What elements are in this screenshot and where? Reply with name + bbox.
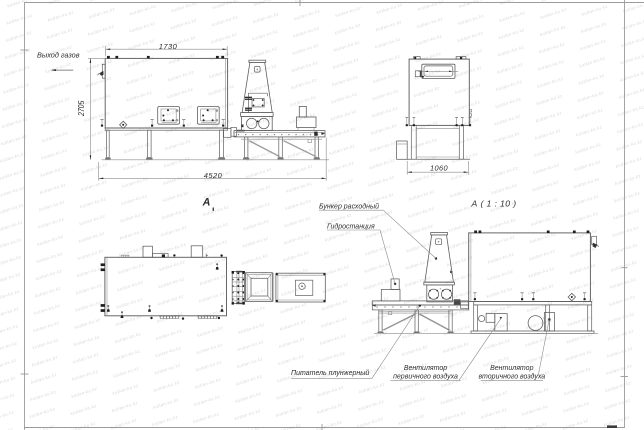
svg-text:kotlan-ko.kz: kotlan-ko.kz [332, 57, 360, 70]
svg-text:kotlan-ko.kz: kotlan-ko.kz [0, 306, 20, 319]
svg-text:kotlan-ko.kz: kotlan-ko.kz [0, 202, 25, 215]
svg-text:kotlan-ko.kz: kotlan-ko.kz [279, 318, 307, 331]
svg-text:kotlan-ko.kz: kotlan-ko.kz [458, 0, 486, 9]
svg-text:Вентилятор: Вентилятор [404, 365, 447, 372]
svg-text:kotlan-ko.kz: kotlan-ko.kz [112, 383, 140, 396]
svg-text:kotlan-ko.kz: kotlan-ko.kz [0, 168, 26, 181]
svg-text:kotlan-ko.kz: kotlan-ko.kz [537, 76, 565, 89]
svg-text:kotlan-ko.kz: kotlan-ko.kz [404, 275, 432, 288]
svg-text:kotlan-ko.kz: kotlan-ko.kz [411, 119, 439, 132]
svg-text:kotlan-ko.kz: kotlan-ko.kz [294, 0, 322, 4]
svg-text:kotlan-ko.kz: kotlan-ko.kz [154, 362, 182, 375]
svg-text:kotlan-ko.kz: kotlan-ko.kz [616, 138, 644, 151]
svg-text:kotlan-ko.kz: kotlan-ko.kz [118, 245, 146, 258]
svg-text:kotlan-ko.kz: kotlan-ko.kz [565, 349, 593, 362]
svg-text:kotlan-ko.kz: kotlan-ko.kz [44, 78, 72, 91]
svg-text:kotlan-ko.kz: kotlan-ko.kz [0, 288, 21, 301]
svg-text:kotlan-ko.kz: kotlan-ko.kz [376, 2, 404, 15]
svg-text:kotlan-ko.kz: kotlan-ko.kz [286, 163, 314, 176]
svg-text:kotlan-ko.kz: kotlan-ko.kz [375, 19, 403, 32]
svg-text:kotlan-ko.kz: kotlan-ko.kz [405, 257, 433, 270]
svg-text:kotlan-ko.kz: kotlan-ko.kz [357, 399, 385, 412]
svg-text:kotlan-ko.kz: kotlan-ko.kz [573, 176, 601, 189]
svg-text:kotlan-ko.kz: kotlan-ko.kz [210, 31, 238, 44]
svg-text:kotlan-ko.kz: kotlan-ko.kz [280, 301, 308, 314]
svg-text:kotlan-ko.kz: kotlan-ko.kz [540, 7, 568, 20]
svg-text:kotlan-ko.kz: kotlan-ko.kz [289, 94, 317, 107]
svg-text:kotlan-ko.kz: kotlan-ko.kz [331, 74, 359, 87]
svg-text:kotlan-ko.kz: kotlan-ko.kz [111, 400, 139, 413]
svg-text:kotlan-ko.kz: kotlan-ko.kz [250, 63, 278, 76]
svg-text:kotlan-ko.kz: kotlan-ko.kz [167, 69, 195, 82]
svg-text:kotlan-ko.kz: kotlan-ko.kz [247, 132, 275, 145]
svg-text:kotlan-ko.kz: kotlan-ko.kz [439, 410, 467, 423]
svg-text:kotlan-ko.kz: kotlan-ko.kz [442, 341, 470, 354]
svg-text:kotlan-ko.kz: kotlan-ko.kz [535, 110, 563, 123]
svg-text:kotlan-ko.kz: kotlan-ko.kz [43, 96, 71, 109]
svg-text:kotlan-ko.kz: kotlan-ko.kz [567, 297, 595, 310]
svg-text:kotlan-ko.kz: kotlan-ko.kz [495, 79, 523, 92]
svg-text:kotlan-ko.kz: kotlan-ko.kz [537, 58, 565, 71]
svg-text:kotlan-ko.kz: kotlan-ko.kz [45, 61, 73, 74]
svg-text:kotlan-ko.kz: kotlan-ko.kz [579, 55, 607, 68]
svg-text:kotlan-ko.kz: kotlan-ko.kz [564, 366, 592, 379]
svg-text:kotlan-ko.kz: kotlan-ko.kz [33, 303, 61, 316]
svg-text:kotlan-ko.kz: kotlan-ko.kz [81, 162, 109, 175]
svg-text:kotlan-ko.kz: kotlan-ko.kz [571, 228, 599, 241]
svg-text:kotlan-ko.kz: kotlan-ko.kz [209, 66, 237, 79]
svg-text:kotlan-ko.kz: kotlan-ko.kz [570, 245, 598, 258]
svg-text:Выход газов: Выход газов [37, 51, 80, 60]
svg-text:kotlan-ko.kz: kotlan-ko.kz [581, 4, 609, 17]
svg-text:kotlan-ko.kz: kotlan-ko.kz [323, 246, 351, 259]
svg-text:kotlan-ko.kz: kotlan-ko.kz [46, 27, 74, 40]
svg-text:kotlan-ko.kz: kotlan-ko.kz [73, 334, 101, 347]
svg-text:kotlan-ko.kz: kotlan-ko.kz [487, 268, 515, 281]
svg-text:kotlan-ko.kz: kotlan-ko.kz [167, 86, 195, 99]
svg-text:kotlan-ko.kz: kotlan-ko.kz [521, 421, 549, 430]
svg-text:kotlan-ko.kz: kotlan-ko.kz [409, 171, 437, 184]
svg-text:kotlan-ko.kz: kotlan-ko.kz [575, 142, 603, 155]
svg-text:первичного воздуха: первичного воздуха [393, 373, 458, 381]
svg-text:kotlan-ko.kz: kotlan-ko.kz [35, 268, 63, 281]
svg-text:kotlan-ko.kz: kotlan-ko.kz [532, 179, 560, 192]
svg-text:kotlan-ko.kz: kotlan-ko.kz [609, 276, 637, 289]
svg-text:А: А [202, 197, 211, 209]
svg-text:kotlan-ko.kz: kotlan-ko.kz [84, 93, 112, 106]
svg-text:kotlan-ko.kz: kotlan-ko.kz [323, 264, 351, 277]
svg-text:kotlan-ko.kz: kotlan-ko.kz [412, 102, 440, 115]
svg-text:kotlan-ko.kz: kotlan-ko.kz [30, 372, 58, 385]
svg-text:kotlan-ko.kz: kotlan-ko.kz [620, 52, 644, 65]
svg-text:kotlan-ko.kz: kotlan-ko.kz [371, 105, 399, 118]
svg-text:kotlan-ko.kz: kotlan-ko.kz [617, 121, 644, 134]
svg-text:kotlan-ko.kz: kotlan-ko.kz [329, 126, 357, 139]
svg-text:kotlan-ko.kz: kotlan-ko.kz [170, 17, 198, 30]
svg-text:kotlan-ko.kz: kotlan-ko.kz [83, 127, 111, 140]
svg-text:kotlan-ko.kz: kotlan-ko.kz [129, 3, 157, 16]
svg-text:kotlan-ko.kz: kotlan-ko.kz [72, 351, 100, 364]
svg-text:kotlan-ko.kz: kotlan-ko.kz [324, 229, 352, 242]
svg-text:kotlan-ko.kz: kotlan-ko.kz [121, 176, 149, 189]
svg-text:kotlan-ko.kz: kotlan-ko.kz [0, 357, 18, 370]
svg-text:kotlan-ko.kz: kotlan-ko.kz [317, 384, 345, 397]
svg-text:kotlan-ko.kz: kotlan-ko.kz [413, 85, 441, 98]
svg-text:kotlan-ko.kz: kotlan-ko.kz [7, 0, 35, 8]
svg-text:kotlan-ko.kz: kotlan-ko.kz [152, 397, 180, 410]
svg-text:kotlan-ko.kz: kotlan-ko.kz [234, 408, 262, 421]
svg-text:kotlan-ko.kz: kotlan-ko.kz [357, 416, 385, 429]
svg-text:kotlan-ko.kz: kotlan-ko.kz [157, 293, 185, 306]
svg-text:kotlan-ko.kz: kotlan-ko.kz [533, 162, 561, 175]
svg-text:kotlan-ko.kz: kotlan-ko.kz [320, 315, 348, 328]
svg-text:kotlan-ko.kz: kotlan-ko.kz [361, 312, 389, 325]
svg-text:kotlan-ko.kz: kotlan-ko.kz [333, 39, 361, 52]
svg-text:kotlan-ko.kz: kotlan-ko.kz [79, 213, 107, 226]
svg-text:kotlan-ko.kz: kotlan-ko.kz [479, 424, 507, 430]
svg-text:kotlan-ko.kz: kotlan-ko.kz [407, 223, 435, 236]
svg-text:kotlan-ko.kz: kotlan-ko.kz [110, 417, 138, 430]
svg-text:kotlan-ko.kz: kotlan-ko.kz [239, 304, 267, 317]
svg-text:kotlan-ko.kz: kotlan-ko.kz [287, 146, 315, 159]
svg-text:2705: 2705 [77, 100, 86, 117]
svg-text:kotlan-ko.kz: kotlan-ko.kz [121, 193, 149, 206]
svg-text:kotlan-ko.kz: kotlan-ko.kz [249, 80, 277, 93]
svg-text:kotlan-ko.kz: kotlan-ko.kz [612, 225, 640, 238]
svg-text:kotlan-ko.kz: kotlan-ko.kz [37, 234, 65, 247]
svg-text:kotlan-ko.kz: kotlan-ko.kz [538, 41, 566, 54]
svg-text:kotlan-ko.kz: kotlan-ko.kz [533, 145, 561, 158]
svg-text:kotlan-ko.kz: kotlan-ko.kz [5, 30, 33, 43]
svg-text:kotlan-ko.kz: kotlan-ko.kz [283, 232, 311, 245]
svg-text:kotlan-ko.kz: kotlan-ko.kz [415, 33, 443, 46]
svg-text:kotlan-ko.kz: kotlan-ko.kz [486, 286, 514, 299]
svg-text:kotlan-ko.kz: kotlan-ko.kz [528, 265, 556, 278]
svg-text:kotlan-ko.kz: kotlan-ko.kz [335, 5, 363, 18]
svg-text:вторичного воздуха: вторичного воздуха [478, 373, 545, 381]
svg-text:kotlan-ko.kz: kotlan-ko.kz [580, 21, 608, 34]
svg-text:kotlan-ko.kz: kotlan-ko.kz [361, 330, 389, 343]
svg-text:kotlan-ko.kz: kotlan-ko.kz [119, 227, 147, 240]
svg-text:kotlan-ko.kz: kotlan-ko.kz [274, 422, 302, 430]
svg-text:kotlan-ko.kz: kotlan-ko.kz [39, 182, 67, 195]
svg-text:kotlan-ko.kz: kotlan-ko.kz [197, 325, 225, 338]
svg-text:kotlan-ko.kz: kotlan-ko.kz [0, 254, 22, 267]
svg-text:kotlan-ko.kz: kotlan-ko.kz [31, 354, 59, 367]
svg-text:kotlan-ko.kz: kotlan-ko.kz [327, 160, 355, 173]
svg-text:kotlan-ko.kz: kotlan-ko.kz [372, 88, 400, 101]
svg-text:kotlan-ko.kz: kotlan-ko.kz [605, 380, 633, 393]
svg-text:kotlan-ko.kz: kotlan-ko.kz [251, 46, 279, 59]
svg-text:kotlan-ko.kz: kotlan-ko.kz [242, 235, 270, 248]
svg-text:kotlan-ko.kz: kotlan-ko.kz [369, 157, 397, 170]
svg-text:kotlan-ko.kz: kotlan-ko.kz [407, 206, 435, 219]
svg-text:kotlan-ko.kz: kotlan-ko.kz [70, 403, 98, 416]
svg-text:kotlan-ko.kz: kotlan-ko.kz [82, 144, 110, 157]
svg-text:Бункер расходный: Бункер расходный [319, 203, 379, 211]
svg-text:kotlan-ko.kz: kotlan-ko.kz [29, 389, 57, 402]
svg-text:kotlan-ko.kz: kotlan-ko.kz [201, 221, 229, 234]
svg-text:kotlan-ko.kz: kotlan-ko.kz [491, 182, 519, 195]
svg-text:kotlan-ko.kz: kotlan-ko.kz [604, 397, 632, 410]
svg-text:kotlan-ko.kz: kotlan-ko.kz [571, 211, 599, 224]
svg-text:kotlan-ko.kz: kotlan-ko.kz [198, 290, 226, 303]
svg-text:kotlan-ko.kz: kotlan-ko.kz [238, 322, 266, 335]
svg-text:kotlan-ko.kz: kotlan-ko.kz [454, 82, 482, 95]
svg-text:kotlan-ko.kz: kotlan-ko.kz [0, 392, 16, 405]
svg-text:kotlan-ko.kz: kotlan-ko.kz [481, 389, 509, 402]
svg-text:kotlan-ko.kz: kotlan-ko.kz [366, 209, 394, 222]
svg-text:kotlan-ko.kz: kotlan-ko.kz [492, 148, 520, 161]
svg-text:kotlan-ko.kz: kotlan-ko.kz [415, 50, 443, 63]
svg-text:kotlan-ko.kz: kotlan-ko.kz [613, 190, 641, 203]
svg-text:kotlan-ko.kz: kotlan-ko.kz [488, 234, 516, 247]
svg-text:kotlan-ko.kz: kotlan-ko.kz [117, 279, 145, 292]
svg-text:kotlan-ko.kz: kotlan-ko.kz [0, 375, 17, 388]
svg-text:kotlan-ko.kz: kotlan-ko.kz [316, 402, 344, 415]
svg-text:kotlan-ko.kz: kotlan-ko.kz [498, 27, 526, 40]
svg-text:kotlan-ko.kz: kotlan-ko.kz [201, 238, 229, 251]
svg-text:kotlan-ko.kz: kotlan-ko.kz [160, 224, 188, 237]
svg-text:kotlan-ko.kz: kotlan-ko.kz [491, 165, 519, 178]
svg-text:1730: 1730 [159, 42, 178, 51]
svg-text:kotlan-ko.kz: kotlan-ko.kz [34, 285, 62, 298]
svg-text:kotlan-ko.kz: kotlan-ko.kz [408, 188, 436, 201]
svg-text:kotlan-ko.kz: kotlan-ko.kz [527, 283, 555, 296]
svg-text:kotlan-ko.kz: kotlan-ko.kz [277, 353, 305, 366]
svg-text:kotlan-ko.kz: kotlan-ko.kz [499, 10, 527, 23]
svg-text:kotlan-ko.kz: kotlan-ko.kz [199, 273, 227, 286]
svg-text:kotlan-ko.kz: kotlan-ko.kz [244, 184, 272, 197]
svg-text:kotlan-ko.kz: kotlan-ko.kz [86, 58, 114, 71]
svg-text:kotlan-ko.kz: kotlan-ko.kz [88, 6, 116, 19]
svg-text:kotlan-ko.kz: kotlan-ko.kz [358, 381, 386, 394]
svg-text:kotlan-ko.kz: kotlan-ko.kz [32, 337, 60, 350]
svg-text:kotlan-ko.kz: kotlan-ko.kz [0, 133, 28, 146]
svg-text:kotlan-ko.kz: kotlan-ko.kz [116, 296, 144, 309]
svg-text:kotlan-ko.kz: kotlan-ko.kz [401, 344, 429, 357]
svg-text:kotlan-ko.kz: kotlan-ko.kz [330, 108, 358, 121]
svg-text:kotlan-ko.kz: kotlan-ko.kz [71, 368, 99, 381]
svg-text:kotlan-ko.kz: kotlan-ko.kz [563, 400, 591, 413]
svg-text:kotlan-ko.kz: kotlan-ko.kz [4, 47, 32, 60]
svg-text:kotlan-ko.kz: kotlan-ko.kz [285, 181, 313, 194]
svg-text:kotlan-ko.kz: kotlan-ko.kz [47, 9, 75, 22]
svg-text:kotlan-ko.kz: kotlan-ko.kz [252, 11, 280, 24]
svg-text:kotlan-ko.kz: kotlan-ko.kz [0, 185, 26, 198]
svg-text:kotlan-ko.kz: kotlan-ko.kz [617, 104, 644, 117]
svg-text:kotlan-ko.kz: kotlan-ko.kz [71, 386, 99, 399]
svg-text:kotlan-ko.kz: kotlan-ko.kz [159, 242, 187, 255]
svg-text:kotlan-ko.kz: kotlan-ko.kz [193, 411, 221, 424]
svg-text:kotlan-ko.kz: kotlan-ko.kz [574, 159, 602, 172]
svg-text:kotlan-ko.kz: kotlan-ko.kz [562, 418, 590, 430]
svg-text:kotlan-ko.kz: kotlan-ko.kz [398, 413, 426, 426]
svg-text:kotlan-ko.kz: kotlan-ko.kz [276, 387, 304, 400]
svg-text:kotlan-ko.kz: kotlan-ko.kz [577, 90, 605, 103]
svg-text:kotlan-ko.kz: kotlan-ko.kz [161, 207, 189, 220]
svg-text:kotlan-ko.kz: kotlan-ko.kz [579, 38, 607, 51]
svg-text:kotlan-ko.kz: kotlan-ko.kz [328, 143, 356, 156]
svg-text:kotlan-ko.kz: kotlan-ko.kz [319, 350, 347, 363]
svg-text:kotlan-ko.kz: kotlan-ko.kz [37, 216, 65, 229]
svg-text:kotlan-ko.kz: kotlan-ko.kz [618, 87, 644, 100]
svg-text:kotlan-ko.kz: kotlan-ko.kz [163, 155, 191, 168]
svg-text:kotlan-ko.kz: kotlan-ko.kz [524, 352, 552, 365]
svg-text:kotlan-ko.kz: kotlan-ko.kz [120, 210, 148, 223]
svg-text:kotlan-ko.kz: kotlan-ko.kz [290, 77, 318, 90]
svg-text:kotlan-ko.kz: kotlan-ko.kz [77, 248, 105, 261]
svg-text:kotlan-ko.kz: kotlan-ko.kz [87, 41, 115, 54]
svg-text:kotlan-ko.kz: kotlan-ko.kz [85, 75, 113, 88]
svg-text:1060: 1060 [430, 163, 449, 172]
svg-text:kotlan-ko.kz: kotlan-ko.kz [251, 28, 279, 41]
svg-text:kotlan-ko.kz: kotlan-ko.kz [123, 141, 151, 154]
svg-text:kotlan-ko.kz: kotlan-ko.kz [243, 218, 271, 231]
svg-text:kotlan-ko.kz: kotlan-ko.kz [411, 137, 439, 150]
svg-text:kotlan-ko.kz: kotlan-ko.kz [253, 0, 281, 7]
svg-text:kotlan-ko.kz: kotlan-ko.kz [117, 262, 145, 275]
svg-text:kotlan-ko.kz: kotlan-ko.kz [284, 215, 312, 228]
svg-text:kotlan-ko.kz: kotlan-ko.kz [235, 391, 263, 404]
svg-text:kotlan-ko.kz: kotlan-ko.kz [78, 231, 106, 244]
svg-text:kotlan-ko.kz: kotlan-ko.kz [315, 419, 343, 430]
svg-text:kotlan-ko.kz: kotlan-ko.kz [2, 99, 30, 112]
svg-text:kotlan-ko.kz: kotlan-ko.kz [607, 328, 635, 341]
svg-text:kotlan-ko.kz: kotlan-ko.kz [362, 295, 390, 308]
svg-text:kotlan-ko.kz: kotlan-ko.kz [0, 426, 14, 430]
svg-text:kotlan-ko.kz: kotlan-ko.kz [327, 177, 355, 190]
svg-text:kotlan-ko.kz: kotlan-ko.kz [125, 89, 153, 102]
svg-text:kotlan-ko.kz: kotlan-ko.kz [89, 0, 117, 2]
svg-text:kotlan-ko.kz: kotlan-ko.kz [494, 113, 522, 126]
svg-text:kotlan-ko.kz: kotlan-ko.kz [208, 83, 236, 96]
svg-text:kotlan-ko.kz: kotlan-ko.kz [619, 69, 644, 82]
svg-text:kotlan-ko.kz: kotlan-ko.kz [74, 317, 102, 330]
svg-text:kotlan-ko.kz: kotlan-ko.kz [448, 220, 476, 233]
svg-text:kotlan-ko.kz: kotlan-ko.kz [575, 124, 603, 137]
svg-text:kotlan-ko.kz: kotlan-ko.kz [289, 112, 317, 125]
svg-text:kotlan-ko.kz: kotlan-ko.kz [578, 73, 606, 86]
svg-text:kotlan-ko.kz: kotlan-ko.kz [158, 276, 186, 289]
svg-text:kotlan-ko.kz: kotlan-ko.kz [489, 217, 517, 230]
svg-text:kotlan-ko.kz: kotlan-ko.kz [69, 420, 97, 430]
svg-text:kotlan-ko.kz: kotlan-ko.kz [493, 131, 521, 144]
svg-text:kotlan-ko.kz: kotlan-ko.kz [76, 265, 104, 278]
svg-text:kotlan-ko.kz: kotlan-ko.kz [162, 190, 190, 203]
svg-text:kotlan-ko.kz: kotlan-ko.kz [114, 331, 142, 344]
svg-text:kotlan-ko.kz: kotlan-ko.kz [36, 251, 64, 264]
svg-text:kotlan-ko.kz: kotlan-ko.kz [373, 54, 401, 67]
svg-text:kotlan-ko.kz: kotlan-ko.kz [369, 140, 397, 153]
svg-text:kotlan-ko.kz: kotlan-ko.kz [41, 130, 69, 143]
svg-text:kotlan-ko.kz: kotlan-ko.kz [530, 214, 558, 227]
svg-text:kotlan-ko.kz: kotlan-ko.kz [521, 403, 549, 416]
svg-text:kotlan-ko.kz: kotlan-ko.kz [440, 392, 468, 405]
svg-text:kotlan-ko.kz: kotlan-ko.kz [567, 314, 595, 327]
svg-text:kotlan-ko.kz: kotlan-ko.kz [113, 348, 141, 361]
svg-text:kotlan-ko.kz: kotlan-ko.kz [609, 294, 637, 307]
svg-text:kotlan-ko.kz: kotlan-ko.kz [0, 323, 19, 336]
svg-text:kotlan-ko.kz: kotlan-ko.kz [207, 100, 235, 113]
svg-text:kotlan-ko.kz: kotlan-ko.kz [525, 334, 553, 347]
svg-text:kotlan-ko.kz: kotlan-ko.kz [211, 14, 239, 27]
svg-text:kotlan-ko.kz: kotlan-ko.kz [28, 423, 56, 430]
svg-text:kotlan-ko.kz: kotlan-ko.kz [275, 405, 303, 418]
svg-text:4520: 4520 [204, 171, 223, 180]
svg-text:kotlan-ko.kz: kotlan-ko.kz [126, 72, 154, 85]
svg-text:kotlan-ko.kz: kotlan-ko.kz [195, 359, 223, 372]
svg-text:kotlan-ko.kz: kotlan-ko.kz [569, 262, 597, 275]
svg-text:kotlan-ko.kz: kotlan-ko.kz [0, 340, 18, 353]
svg-text:kotlan-ko.kz: kotlan-ko.kz [364, 261, 392, 274]
svg-text:kotlan-ko.kz: kotlan-ko.kz [374, 36, 402, 49]
svg-text:kotlan-ko.kz: kotlan-ko.kz [291, 60, 319, 73]
svg-text:kotlan-ko.kz: kotlan-ko.kz [29, 406, 57, 419]
svg-text:kotlan-ko.kz: kotlan-ko.kz [40, 165, 68, 178]
svg-text:kotlan-ko.kz: kotlan-ko.kz [536, 93, 564, 106]
svg-text:kotlan-ko.kz: kotlan-ko.kz [457, 13, 485, 26]
svg-text:kotlan-ko.kz: kotlan-ko.kz [334, 22, 362, 35]
svg-text:kotlan-ko.kz: kotlan-ko.kz [335, 0, 363, 1]
svg-text:kotlan-ko.kz: kotlan-ko.kz [243, 201, 271, 214]
svg-text:kotlan-ko.kz: kotlan-ko.kz [614, 173, 642, 186]
svg-text:kotlan-ko.kz: kotlan-ko.kz [236, 356, 264, 369]
svg-text:kotlan-ko.kz: kotlan-ko.kz [0, 150, 27, 163]
svg-text:kotlan-ko.kz: kotlan-ko.kz [75, 282, 103, 295]
svg-text:kotlan-ko.kz: kotlan-ko.kz [159, 259, 187, 272]
svg-text:kotlan-ko.kz: kotlan-ko.kz [576, 107, 604, 120]
svg-text:kotlan-ko.kz: kotlan-ko.kz [80, 179, 108, 192]
svg-text:kotlan-ko.kz: kotlan-ko.kz [194, 376, 222, 389]
svg-text:kotlan-ko.kz: kotlan-ko.kz [33, 320, 61, 333]
svg-text:А ( 1 : 10 ): А ( 1 : 10 ) [471, 199, 517, 209]
svg-text:kotlan-ko.kz: kotlan-ko.kz [399, 395, 427, 408]
svg-text:kotlan-ko.kz: kotlan-ko.kz [127, 55, 155, 68]
svg-text:kotlan-ko.kz: kotlan-ko.kz [373, 71, 401, 84]
svg-text:kotlan-ko.kz: kotlan-ko.kz [164, 138, 192, 151]
svg-text:kotlan-ko.kz: kotlan-ko.kz [608, 311, 636, 324]
svg-text:kotlan-ko.kz: kotlan-ko.kz [563, 383, 591, 396]
svg-text:Гидростанция: Гидростанция [327, 222, 375, 230]
svg-text:kotlan-ko.kz: kotlan-ko.kz [539, 24, 567, 37]
svg-text:kotlan-ko.kz: kotlan-ko.kz [319, 333, 347, 346]
svg-text:kotlan-ko.kz: kotlan-ko.kz [87, 24, 115, 37]
svg-text:kotlan-ko.kz: kotlan-ko.kz [605, 363, 633, 376]
svg-text:kotlan-ko.kz: kotlan-ko.kz [122, 158, 150, 171]
svg-text:kotlan-ko.kz: kotlan-ko.kz [483, 337, 511, 350]
svg-text:kotlan-ko.kz: kotlan-ko.kz [495, 96, 523, 109]
svg-text:kotlan-ko.kz: kotlan-ko.kz [235, 373, 263, 386]
svg-text:kotlan-ko.kz: kotlan-ko.kz [370, 123, 398, 136]
svg-text:kotlan-ko.kz: kotlan-ko.kz [497, 44, 525, 57]
svg-text:kotlan-ko.kz: kotlan-ko.kz [522, 386, 550, 399]
svg-text:kotlan-ko.kz: kotlan-ko.kz [212, 0, 240, 10]
svg-text:kotlan-ko.kz: kotlan-ko.kz [3, 64, 31, 77]
svg-text:kotlan-ko.kz: kotlan-ko.kz [453, 99, 481, 112]
svg-text:kotlan-ko.kz: kotlan-ko.kz [209, 49, 237, 62]
svg-text:kotlan-ko.kz: kotlan-ko.kz [615, 156, 643, 169]
svg-text:kotlan-ko.kz: kotlan-ko.kz [75, 299, 103, 312]
svg-text:kotlan-ko.kz: kotlan-ko.kz [282, 249, 310, 262]
svg-text:kotlan-ko.kz: kotlan-ko.kz [450, 168, 478, 181]
svg-text:Вентилятор: Вентилятор [490, 365, 533, 372]
svg-text:kotlan-ko.kz: kotlan-ko.kz [487, 251, 515, 264]
svg-text:kotlan-ko.kz: kotlan-ko.kz [6, 12, 34, 25]
svg-text:kotlan-ko.kz: kotlan-ko.kz [360, 347, 388, 360]
svg-text:kotlan-ko.kz: kotlan-ko.kz [163, 173, 191, 186]
svg-text:kotlan-ko.kz: kotlan-ko.kz [0, 219, 24, 232]
